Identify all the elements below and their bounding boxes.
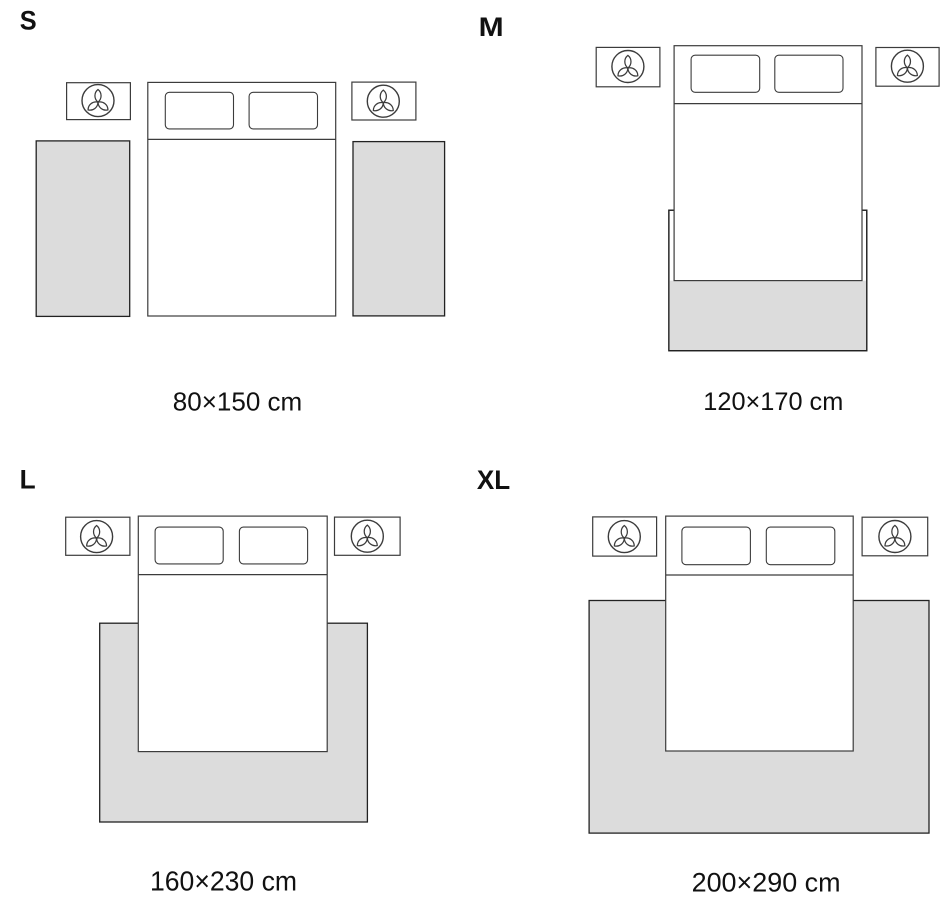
svg-text:S: S [20,6,37,36]
svg-text:80×150 cm: 80×150 cm [173,387,303,417]
svg-text:120×170 cm: 120×170 cm [703,388,843,416]
svg-text:L: L [20,465,36,495]
svg-text:M: M [479,12,504,42]
svg-text:200×290 cm: 200×290 cm [692,867,841,897]
svg-text:XL: XL [477,465,510,495]
svg-text:160×230 cm: 160×230 cm [150,866,297,897]
